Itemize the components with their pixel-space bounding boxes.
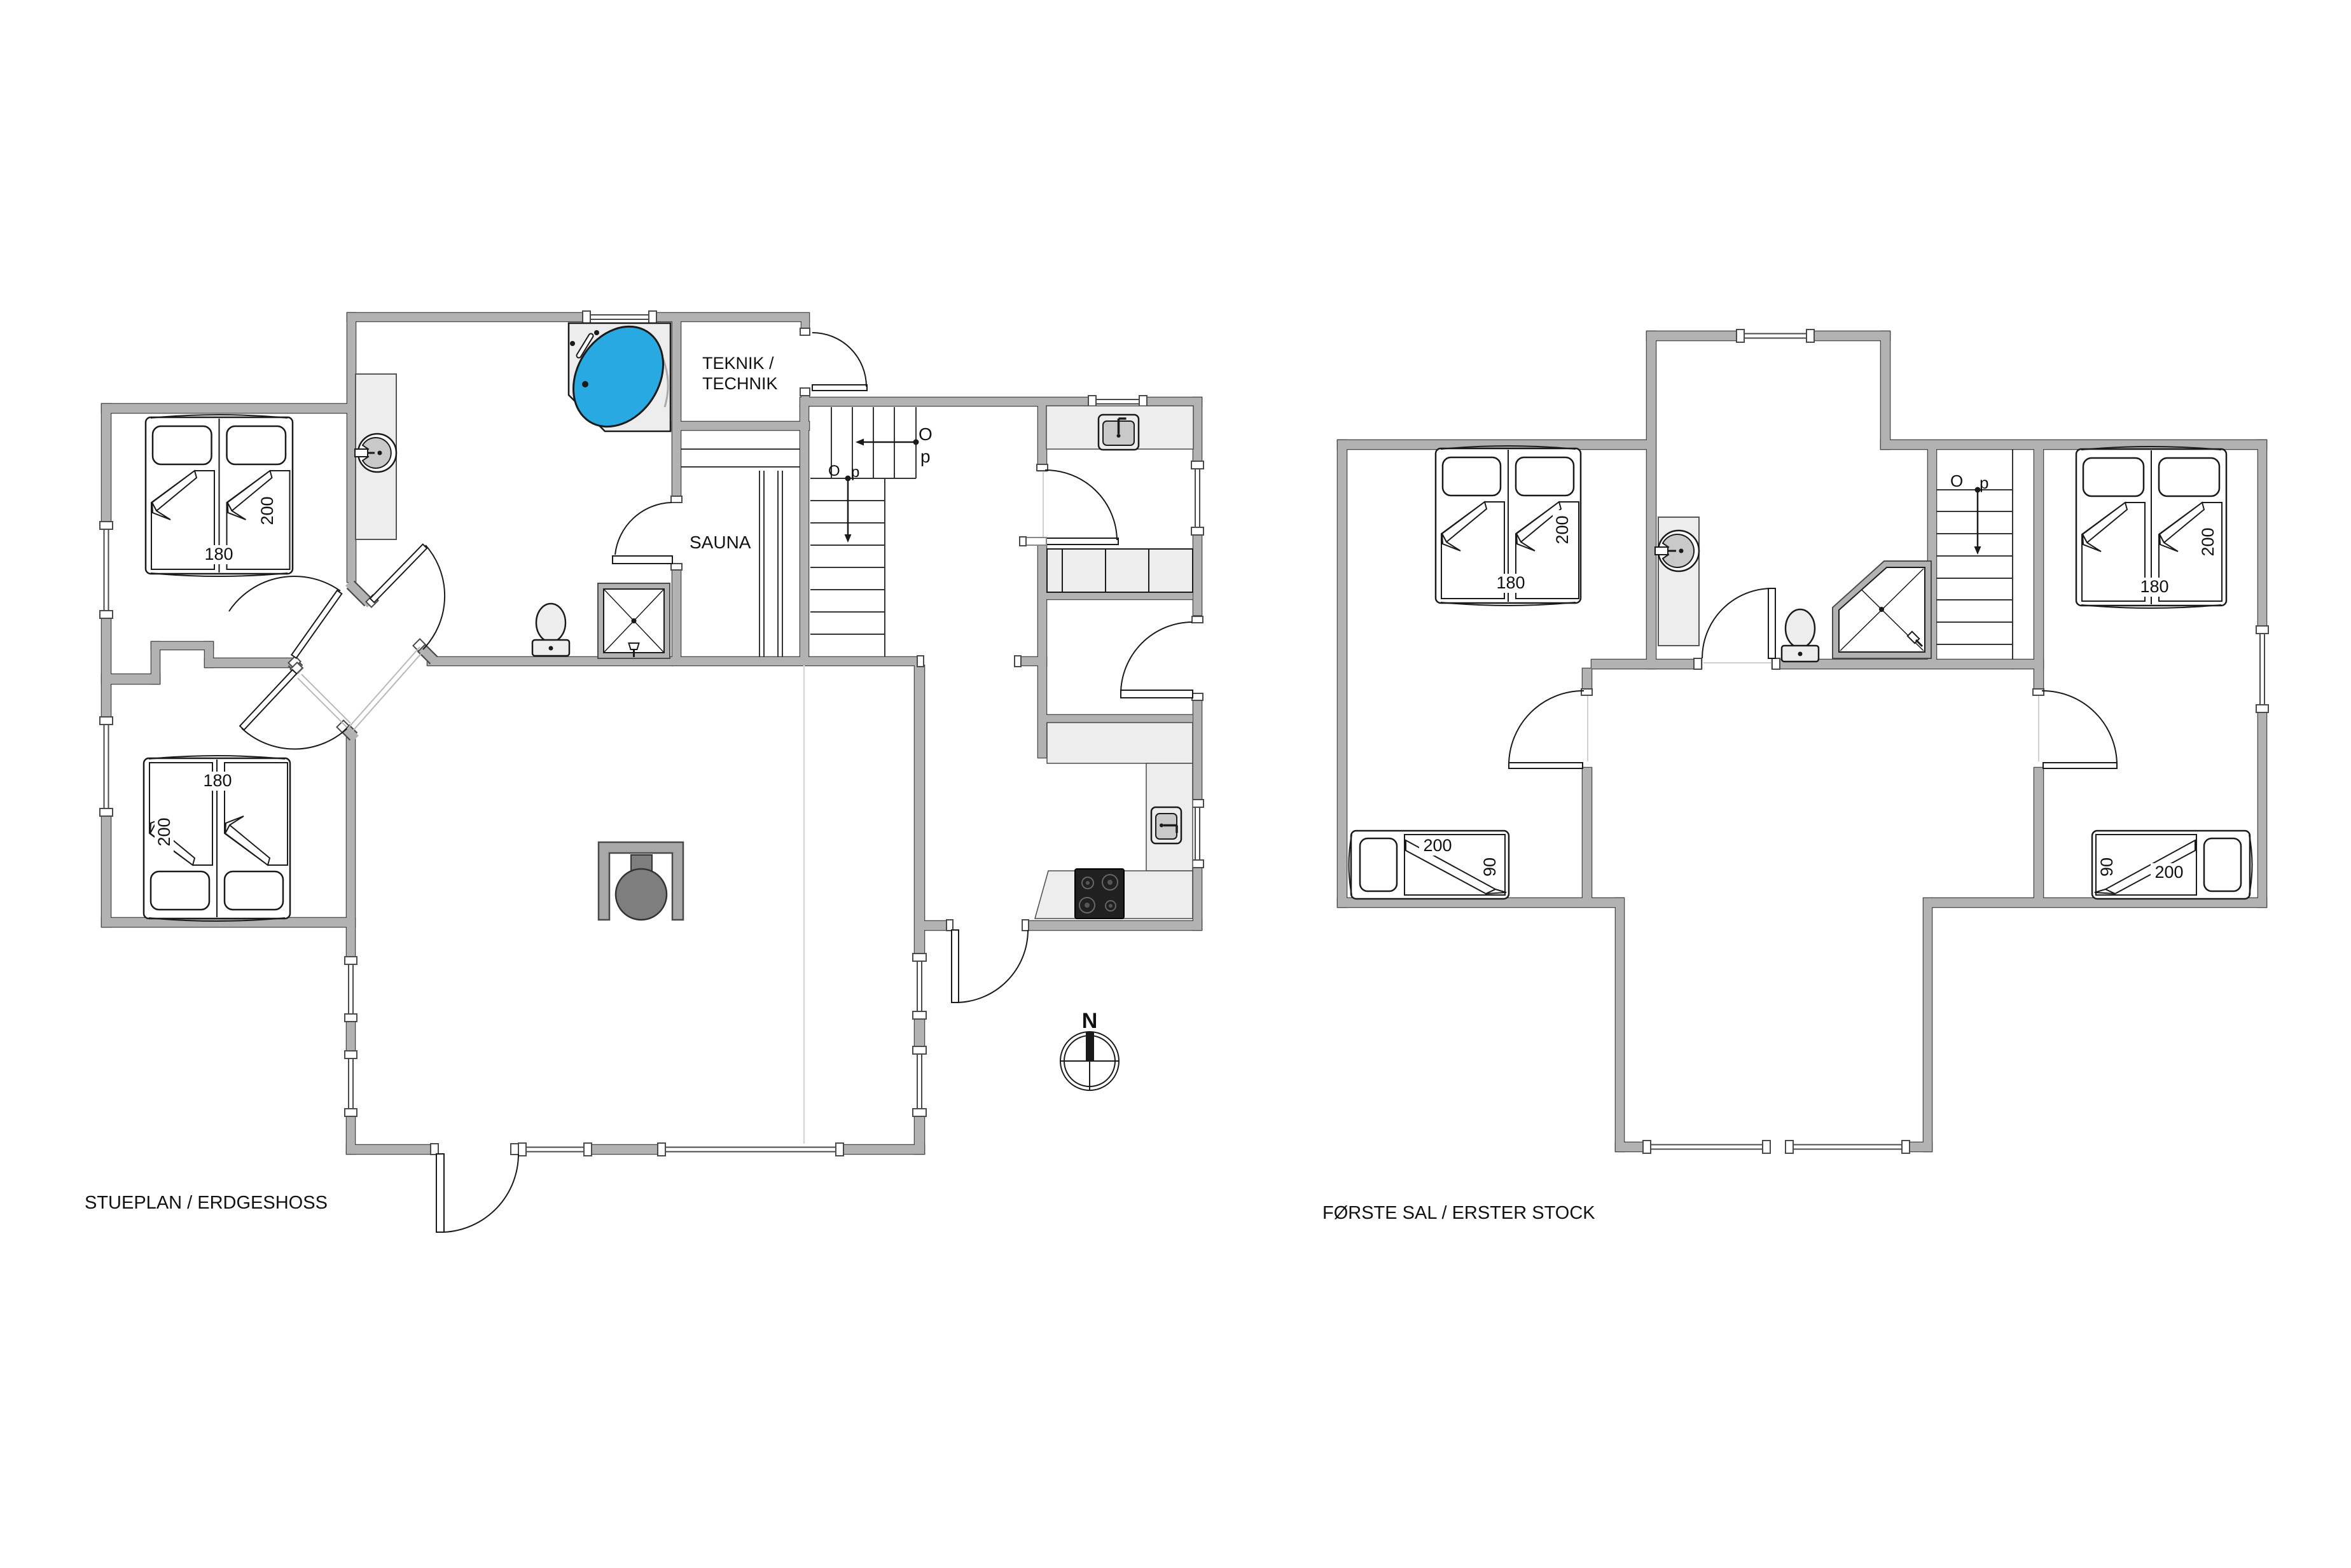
svg-text:p: p	[1980, 473, 1988, 492]
svg-text:TECHNIK: TECHNIK	[702, 374, 778, 393]
svg-text:O: O	[1950, 471, 1963, 490]
svg-text:TEKNIK /: TEKNIK /	[702, 354, 774, 373]
svg-text:FØRSTE SAL / ERSTER STOCK: FØRSTE SAL / ERSTER STOCK	[1322, 1203, 1595, 1223]
svg-text:200: 200	[1423, 836, 1452, 855]
svg-text:200: 200	[1553, 515, 1572, 544]
svg-text:p: p	[920, 447, 931, 466]
svg-text:200: 200	[258, 496, 277, 525]
svg-text:180: 180	[204, 545, 233, 564]
svg-text:200: 200	[2198, 527, 2217, 556]
svg-text:SAUNA: SAUNA	[690, 532, 751, 552]
svg-text:O: O	[828, 462, 840, 480]
svg-text:200: 200	[2154, 863, 2183, 882]
svg-text:180: 180	[2140, 577, 2168, 596]
svg-text:180: 180	[203, 771, 232, 790]
svg-text:200: 200	[155, 817, 174, 846]
svg-text:p: p	[851, 464, 859, 481]
svg-text:180: 180	[1496, 573, 1525, 592]
svg-text:90: 90	[1480, 857, 1499, 877]
svg-text:90: 90	[2097, 857, 2116, 877]
svg-text:STUEPLAN / ERDGESHOSS: STUEPLAN / ERDGESHOSS	[85, 1193, 328, 1213]
svg-text:O: O	[919, 424, 933, 444]
svg-text:N: N	[1082, 1009, 1098, 1033]
